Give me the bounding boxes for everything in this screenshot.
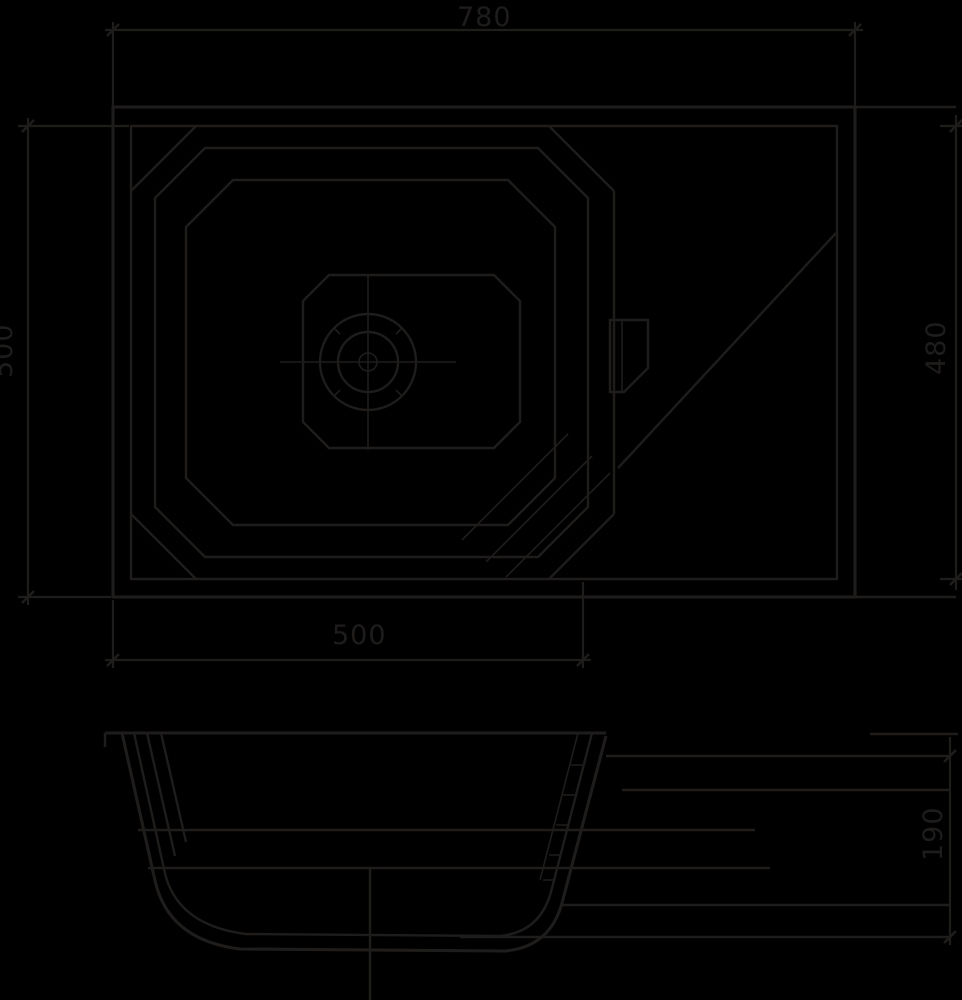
bowl-wall-line-3 (147, 733, 175, 856)
dim-text-bowl-depth: 190 (918, 806, 949, 861)
dimension-overall-depth-left: 500 (0, 118, 129, 605)
dimension-inner-depth-right: 480 (921, 115, 962, 590)
dim-text-overall-depth: 500 (0, 323, 19, 378)
bowl-step-2 (186, 180, 555, 525)
bowl-wall-line-4 (161, 733, 186, 842)
sink-inner-rim (131, 126, 837, 579)
bowl-right-wall-steps (540, 733, 584, 880)
dim-text-overall-width: 780 (457, 2, 512, 33)
plan-view (113, 107, 956, 597)
dim-text-inner-depth: 480 (921, 320, 952, 375)
sink-spec-drawing: 780 500 480 500 (0, 0, 962, 1000)
front-view (105, 733, 958, 1000)
drainer-diagonal (618, 233, 836, 468)
bowl-step-1 (155, 148, 588, 557)
dimension-bowl-depth: 190 (918, 737, 956, 945)
tap-hole (610, 320, 648, 392)
bowl-outline (131, 126, 614, 579)
bowl-profile-inner (134, 733, 592, 936)
dim-text-bowl-width: 500 (332, 620, 387, 651)
dimension-bowl-section-width: 500 (105, 582, 591, 668)
dimension-overall-width: 780 (105, 2, 863, 106)
bowl-profile-outer (122, 733, 606, 951)
technical-drawing-canvas: 780 500 480 500 (0, 0, 962, 1000)
drain-icon (280, 274, 456, 450)
